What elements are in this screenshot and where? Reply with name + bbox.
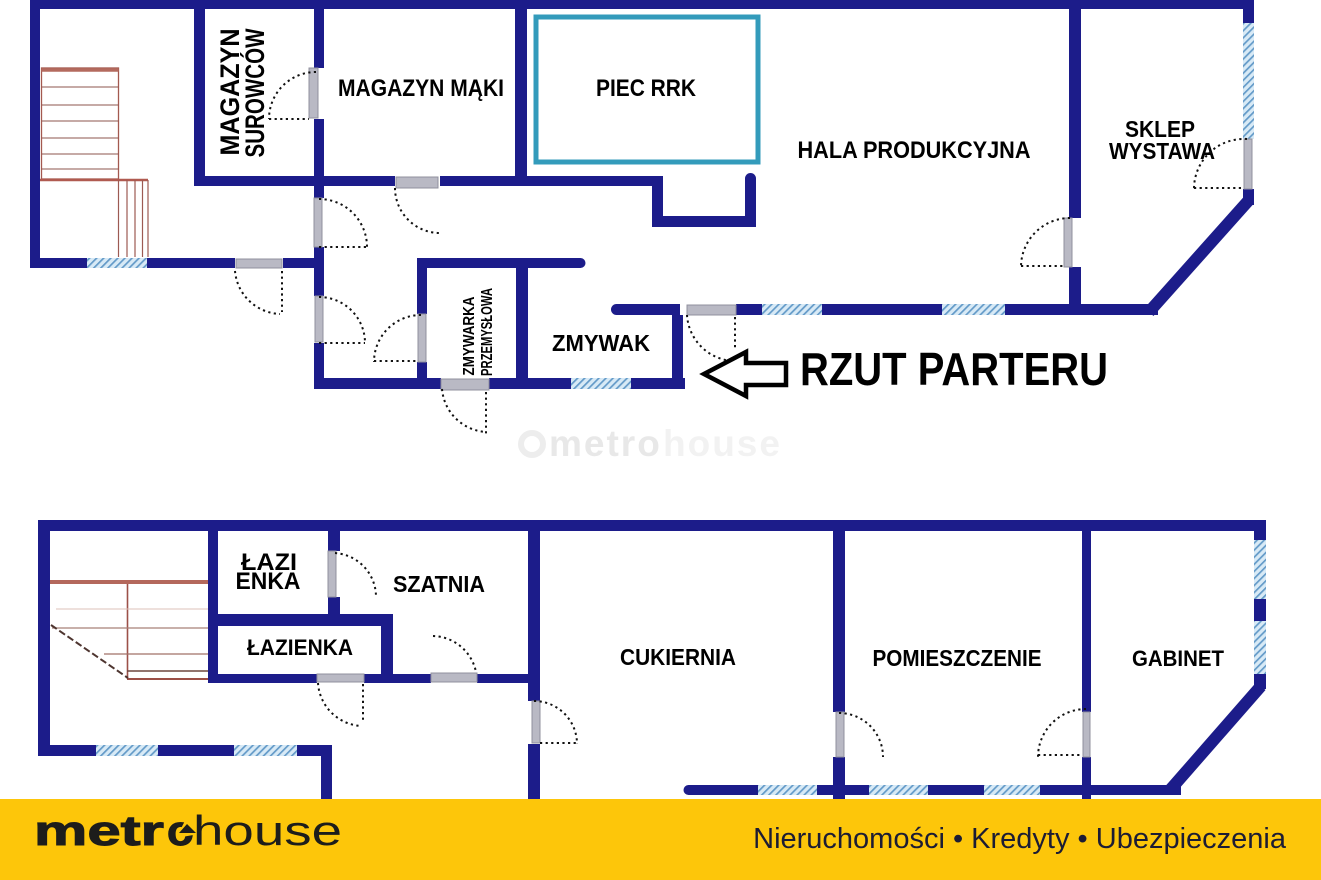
svg-text:SZATNIA: SZATNIA	[393, 571, 485, 597]
svg-text:POMIESZCZENIE: POMIESZCZENIE	[873, 645, 1042, 671]
svg-text:PIEC RRK: PIEC RRK	[596, 75, 697, 102]
svg-text:HALA PRODUKCYJNA: HALA PRODUKCYJNA	[798, 137, 1031, 164]
svg-text:house: house	[663, 423, 782, 464]
svg-text:MAGAZYN MĄKI: MAGAZYN MĄKI	[338, 75, 504, 102]
svg-text:ZMYWARKA: ZMYWARKA	[461, 296, 478, 375]
svg-text:ŁAZIENKA: ŁAZIENKA	[247, 635, 353, 660]
svg-text:SUROWCÓW: SUROWCÓW	[239, 28, 270, 157]
svg-text:PRZEMYSŁOWA: PRZEMYSŁOWA	[479, 288, 496, 376]
svg-text:WYSTAWA: WYSTAWA	[1109, 138, 1215, 164]
svg-text:Nieruchomości • Kredyty • Ubez: Nieruchomości • Kredyty • Ubezpieczenia	[753, 823, 1287, 855]
svg-text:metro: metro	[549, 423, 662, 464]
svg-text:ENKA: ENKA	[236, 568, 301, 595]
svg-text:ZMYWAK: ZMYWAK	[552, 330, 650, 356]
svg-text:CUKIERNIA: CUKIERNIA	[620, 644, 736, 670]
svg-text:house: house	[193, 807, 342, 854]
svg-text:GABINET: GABINET	[1132, 646, 1225, 671]
svg-text:RZUT PARTERU: RZUT PARTERU	[800, 343, 1108, 395]
svg-text:metr: metr	[34, 807, 164, 854]
